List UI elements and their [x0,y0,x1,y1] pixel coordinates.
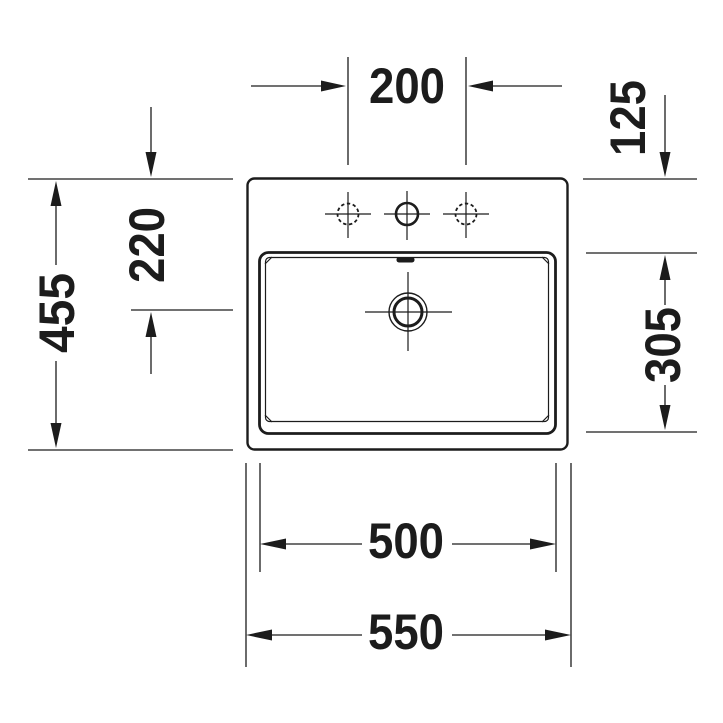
arrow-left-icon [260,539,286,550]
dim-tap-hole-spacing: 200 [251,57,562,165]
dim-basin-width: 500 [260,463,556,572]
arrow-down-icon [146,152,157,177]
arrow-right-icon [321,81,346,92]
arrow-down-icon [660,405,671,430]
arrow-down-icon [660,152,671,177]
dim-label-200: 200 [369,58,445,114]
arrow-right-icon [530,539,556,550]
washbasin-dimension-drawing: 200 125 305 455 220 500 [0,0,723,723]
arrow-left-icon [468,81,493,92]
dim-basin-depth: 305 [586,253,697,432]
dimension-drawing-canvas: 200 125 305 455 220 500 [0,0,723,723]
dim-rear-edge-to-drain: 220 [119,107,233,374]
dim-label-500: 500 [368,513,444,569]
dim-label-220: 220 [119,207,175,283]
dim-rear-edge-to-basin: 125 [583,80,697,179]
arrow-left-icon [246,630,272,641]
dim-label-455: 455 [29,273,85,353]
arrow-up-icon [146,312,157,337]
dim-label-125: 125 [600,80,656,156]
arrow-right-icon [545,630,571,641]
arrow-down-icon [51,423,62,448]
dim-label-305: 305 [635,307,691,383]
dim-label-550: 550 [368,604,444,660]
overflow-slot-icon [397,257,415,263]
arrow-up-icon [51,181,62,206]
arrow-up-icon [660,255,671,280]
